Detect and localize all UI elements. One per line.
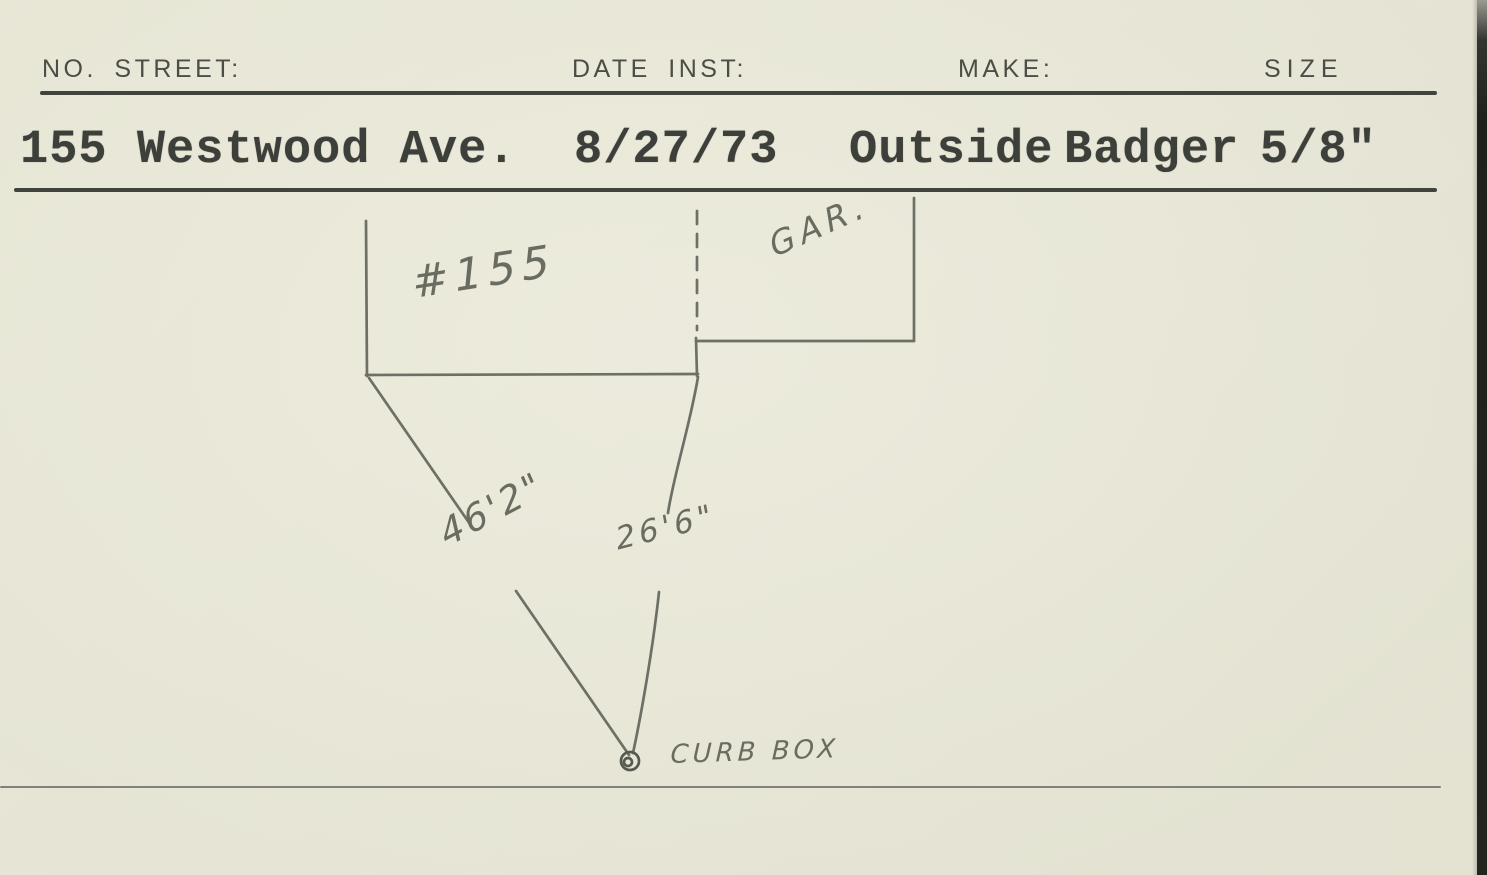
curb-box-symbol-center	[624, 758, 632, 766]
measure-line-right-upper	[668, 377, 698, 513]
scan-edge	[1477, 0, 1487, 875]
house-bottom-wall	[366, 374, 698, 375]
service-record-card: NO. STREET: DATE INST: MAKE: SIZE 155 We…	[0, 0, 1487, 875]
house-left-wall	[366, 221, 367, 376]
garage-step-wall	[696, 338, 697, 376]
measure-line-right-lower	[633, 592, 659, 753]
measure-line-left-lower	[516, 591, 629, 755]
curb-box-label: CURB BOX	[670, 734, 840, 770]
